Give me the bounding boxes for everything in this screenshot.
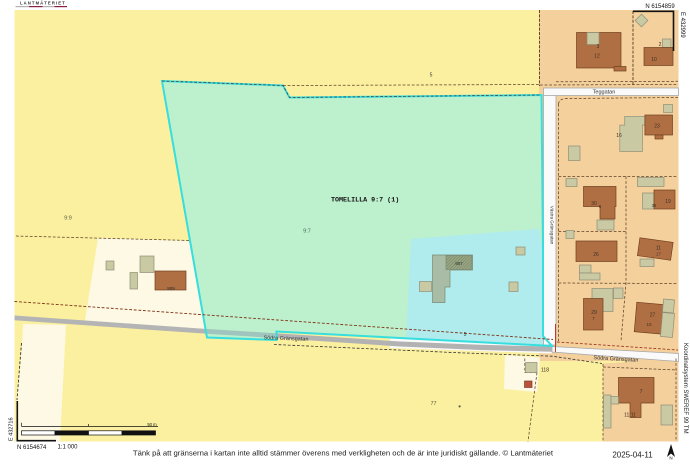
svg-text:5: 5 — [464, 332, 467, 338]
svg-text:77: 77 — [430, 401, 436, 407]
svg-text:27: 27 — [650, 313, 656, 319]
svg-text:TOMELILLA 9:7 (1): TOMELILLA 9:7 (1) — [331, 196, 399, 204]
svg-text:Teggatan: Teggatan — [593, 90, 616, 96]
svg-text:LANTMÄTERIET: LANTMÄTERIET — [20, 1, 66, 6]
svg-text:12: 12 — [594, 54, 600, 60]
svg-text:50 m: 50 m — [147, 422, 157, 427]
svg-text:16: 16 — [616, 133, 622, 139]
svg-text:9:7: 9:7 — [303, 229, 311, 235]
svg-text:N 6154859: N 6154859 — [645, 4, 675, 10]
svg-text:909: 909 — [167, 286, 175, 291]
svg-text:26: 26 — [593, 252, 599, 258]
svg-text:5: 5 — [430, 73, 433, 79]
svg-text:1:1 000: 1:1 000 — [58, 445, 79, 451]
svg-text:23: 23 — [654, 124, 660, 130]
svg-text:3: 3 — [597, 44, 600, 50]
svg-text:2025-04-11: 2025-04-11 — [612, 450, 653, 459]
svg-text:38: 38 — [652, 203, 657, 208]
svg-text:118: 118 — [541, 368, 549, 374]
svg-text:10: 10 — [651, 57, 657, 63]
svg-text:E 432716: E 432716 — [9, 417, 15, 441]
svg-text:17: 17 — [656, 252, 661, 257]
svg-text:9:9: 9:9 — [64, 216, 72, 222]
svg-text:10: 10 — [646, 322, 652, 327]
svg-text:Tänk på att gränserna i kartan: Tänk på att gränserna i kartan inte allt… — [133, 449, 554, 458]
svg-text:Koordinatsystem SWEREF 99 TM: Koordinatsystem SWEREF 99 TM — [682, 343, 688, 434]
svg-text:N 6154674: N 6154674 — [17, 445, 47, 451]
svg-text:11:11: 11:11 — [624, 413, 636, 419]
svg-text:19: 19 — [665, 199, 671, 205]
svg-text:30: 30 — [591, 201, 597, 207]
svg-text:907: 907 — [455, 261, 463, 266]
svg-text:Västra Gränsgatan: Västra Gränsgatan — [550, 206, 555, 245]
svg-text:E 432999: E 432999 — [679, 12, 685, 38]
svg-text:7: 7 — [640, 389, 643, 395]
svg-text:2: 2 — [659, 42, 662, 48]
svg-text:N: N — [669, 456, 672, 461]
